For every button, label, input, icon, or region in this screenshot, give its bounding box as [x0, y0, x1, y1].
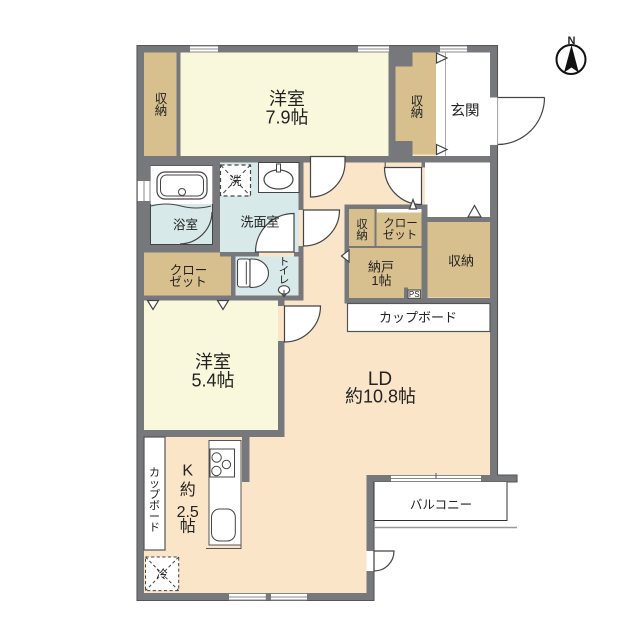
svg-text:クロー: クロー — [383, 217, 418, 230]
svg-text:納: 納 — [155, 104, 168, 118]
svg-text:5.4帖: 5.4帖 — [191, 371, 234, 391]
svg-text:洋室: 洋室 — [269, 89, 305, 109]
svg-text:洋室: 洋室 — [195, 352, 231, 372]
svg-text:冷: 冷 — [156, 568, 168, 581]
svg-text:洗: 洗 — [229, 174, 241, 188]
svg-text:N: N — [568, 35, 576, 47]
svg-text:ゼット: ゼット — [383, 229, 418, 242]
svg-text:帖: 帖 — [180, 518, 196, 536]
svg-text:レ: レ — [279, 274, 290, 286]
svg-text:収納: 収納 — [448, 254, 474, 269]
svg-text:K: K — [182, 462, 193, 479]
svg-text:7.9帖: 7.9帖 — [265, 108, 308, 128]
svg-text:浴室: 浴室 — [173, 217, 198, 232]
svg-text:納: 納 — [411, 106, 424, 120]
svg-text:約: 約 — [180, 481, 196, 499]
svg-text:納: 納 — [356, 229, 368, 242]
svg-text:ド: ド — [149, 522, 160, 534]
svg-text:バルコニー: バルコニー — [410, 498, 472, 512]
svg-text:玄関: 玄関 — [451, 103, 480, 120]
svg-text:カップボード: カップボード — [379, 310, 457, 325]
svg-text:約10.8帖: 約10.8帖 — [345, 387, 416, 407]
svg-text:ゼット: ゼット — [169, 275, 207, 289]
svg-text:1帖: 1帖 — [371, 273, 391, 288]
svg-text:洗面室: 洗面室 — [240, 215, 279, 230]
svg-text:PS: PS — [409, 290, 420, 299]
